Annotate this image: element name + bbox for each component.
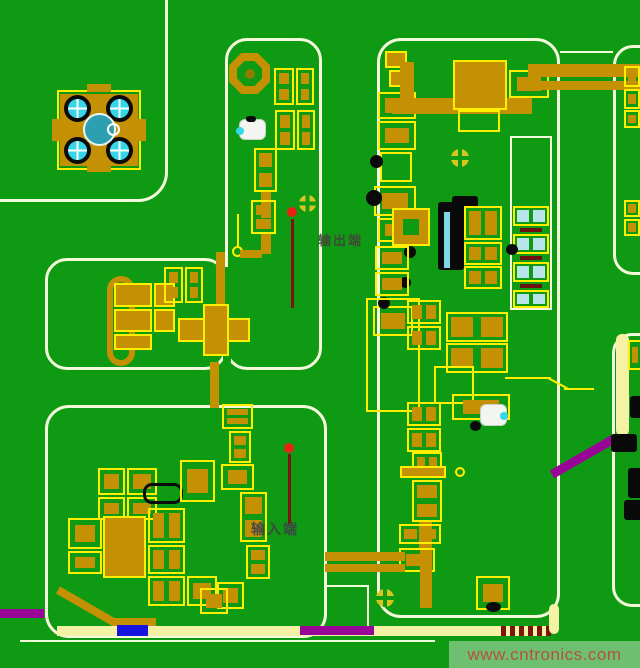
via-hole bbox=[506, 244, 518, 255]
smd-pad bbox=[628, 340, 640, 370]
inner-layer-trace bbox=[300, 626, 374, 635]
smd-pad bbox=[68, 551, 102, 574]
smd-pad bbox=[98, 468, 125, 495]
component-mark bbox=[246, 116, 256, 122]
drill-hole bbox=[630, 396, 640, 418]
board-edge-trace bbox=[549, 604, 559, 634]
via-hole bbox=[486, 602, 501, 612]
copper-trace bbox=[216, 252, 225, 310]
pad-separator bbox=[520, 228, 542, 232]
drill-hole bbox=[611, 434, 637, 452]
copper-trace bbox=[400, 62, 414, 100]
smd-pad bbox=[412, 480, 442, 522]
smd-pad bbox=[624, 219, 640, 236]
fiducial-crosshair bbox=[376, 589, 394, 607]
smd-pad bbox=[296, 68, 314, 105]
output-terminal-label: 输出端 bbox=[318, 230, 363, 249]
smd-pad bbox=[148, 508, 185, 543]
smd-pad bbox=[222, 404, 253, 429]
fiducial-crosshair bbox=[299, 195, 316, 212]
smd-pad bbox=[407, 402, 441, 426]
smd-pad bbox=[378, 121, 416, 150]
smd-pad bbox=[274, 68, 294, 105]
smd-pad bbox=[407, 428, 441, 452]
copper-tab bbox=[52, 119, 60, 141]
smd-pad bbox=[275, 110, 295, 150]
smd-pad bbox=[624, 89, 640, 109]
input-terminal-label: 输入端 bbox=[251, 519, 299, 539]
copper-trace bbox=[325, 564, 405, 572]
component-courtyard bbox=[380, 152, 412, 182]
drill-hole bbox=[628, 468, 640, 498]
smd-pad bbox=[148, 545, 185, 574]
hatched-trace bbox=[501, 626, 551, 636]
fiducial-crosshair bbox=[451, 149, 469, 167]
pad-separator bbox=[520, 284, 542, 288]
smd-pad bbox=[624, 200, 640, 217]
copper-tab bbox=[87, 84, 111, 92]
via-hole bbox=[370, 155, 383, 168]
smd-pad bbox=[154, 309, 175, 332]
capacitor-pad bbox=[513, 234, 549, 254]
smd-pad bbox=[375, 246, 409, 270]
copper-trace bbox=[325, 552, 405, 561]
via-hole bbox=[366, 190, 382, 206]
smd-pad bbox=[114, 334, 152, 350]
solder-jumper bbox=[117, 625, 148, 636]
smd-pad bbox=[180, 460, 215, 502]
smd-pad bbox=[164, 267, 183, 303]
pin1-marker bbox=[236, 127, 244, 135]
leader-line bbox=[288, 454, 291, 524]
board-outline-segment bbox=[560, 51, 613, 53]
pin1-marker bbox=[500, 412, 508, 420]
via bbox=[455, 467, 465, 477]
smd-pad bbox=[464, 266, 502, 289]
plated-slot bbox=[444, 212, 450, 268]
center-pad-ring bbox=[107, 123, 120, 136]
copper-tab bbox=[87, 164, 111, 172]
inner-layer-trace bbox=[550, 434, 619, 479]
copper-tab bbox=[138, 119, 146, 141]
smd-pad bbox=[297, 110, 315, 150]
thermal-pad-center bbox=[403, 219, 419, 235]
capacitor-pad bbox=[513, 262, 549, 282]
component-courtyard bbox=[458, 110, 500, 132]
copper-trace bbox=[240, 250, 262, 258]
board-outline-segment bbox=[20, 640, 435, 642]
smd-pad bbox=[407, 326, 441, 350]
smd-pad bbox=[446, 312, 508, 342]
pad-separator bbox=[520, 256, 542, 260]
copper-trace bbox=[420, 550, 432, 608]
smd-pad bbox=[464, 206, 502, 240]
smd-pad bbox=[375, 272, 409, 296]
board-outline-segment bbox=[367, 585, 369, 627]
smd-pad bbox=[103, 516, 146, 578]
inner-layer-trace bbox=[0, 609, 44, 618]
capacitor-pad bbox=[513, 206, 549, 226]
smd-pad bbox=[68, 518, 102, 549]
smd-pad bbox=[399, 524, 441, 544]
component-outline bbox=[143, 483, 183, 504]
smd-pad bbox=[200, 588, 228, 614]
copper-trace bbox=[210, 362, 219, 408]
smd-pad bbox=[624, 66, 640, 87]
drill-hole bbox=[624, 500, 640, 520]
copper-trace bbox=[261, 234, 271, 254]
capacitor-pad bbox=[513, 290, 549, 308]
smd-pad bbox=[464, 242, 502, 265]
smd-pad bbox=[254, 148, 277, 192]
watermark-band: www.cntronics.com bbox=[449, 641, 640, 668]
component-body-dark bbox=[438, 202, 464, 270]
component-courtyard bbox=[453, 60, 507, 110]
smd-pad bbox=[185, 267, 203, 303]
smd-pad bbox=[246, 545, 270, 579]
smd-pad bbox=[400, 466, 446, 478]
smd-pad bbox=[624, 110, 640, 128]
smd-pad bbox=[251, 200, 276, 234]
leader-dot bbox=[284, 443, 294, 453]
smd-pad bbox=[114, 309, 152, 332]
board-outline-segment bbox=[325, 585, 369, 587]
smd-pad bbox=[229, 431, 251, 463]
signal-trace bbox=[564, 388, 594, 390]
watermark-text: www.cntronics.com bbox=[468, 645, 622, 665]
smd-pad bbox=[407, 300, 441, 324]
smd-pad bbox=[221, 464, 254, 490]
smd-pad bbox=[148, 576, 185, 606]
via-hole bbox=[470, 421, 481, 431]
smd-pad bbox=[114, 283, 152, 307]
signal-trace bbox=[505, 377, 551, 379]
signal-trace bbox=[237, 214, 239, 246]
leader-dot bbox=[287, 207, 297, 217]
component-courtyard bbox=[203, 304, 229, 356]
pcb-layout-image: 输出端 输入端 www.cntronics.com bbox=[0, 0, 640, 668]
octagon-pad-center bbox=[245, 69, 255, 79]
leader-line bbox=[291, 219, 294, 308]
